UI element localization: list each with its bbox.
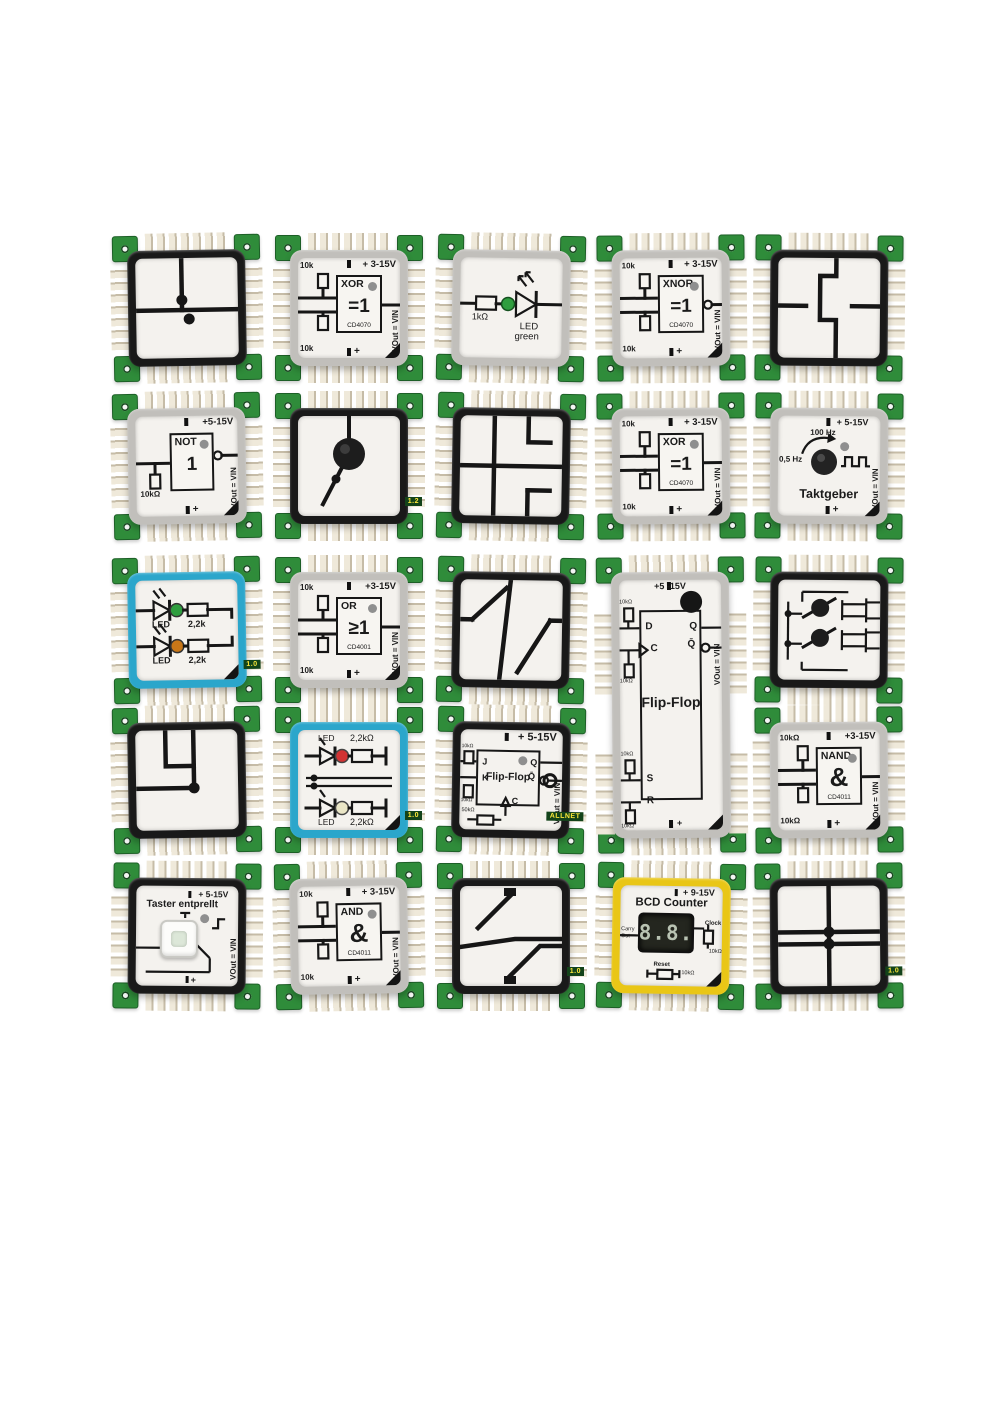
circuit-graphic [778,886,881,987]
resistor-value: 10kΩ [780,734,800,742]
voltage-label: +5 -15V [619,582,721,592]
led-label: LED [152,656,170,665]
resistor-value: 10kΩ [620,679,633,685]
gate-name: AND [340,907,363,918]
corner-wedge [224,664,239,679]
circuit-graphic [778,258,881,359]
brick-face: AND&CD4011+ 3-15V10k10kVOut = VIN+ [297,885,401,987]
brick-frame [290,408,408,524]
brick-bcd-counter: + 9-15VBCD Counter8.8.Clock10kΩCarryOutR… [611,877,731,995]
corner-wedge [706,972,721,987]
resistor-value: 10kΩ [620,752,633,758]
connector-pins [788,992,870,1012]
input-c-label: C [650,644,657,654]
gate-symbol-box: AND&CD4011 [335,902,382,961]
gate-symbol-box: XOR=1CD4070 [336,275,382,333]
gate-symbol: =1 [338,297,380,316]
gate-name: OR [341,601,357,612]
brick-face: XOR=1CD4070+ 3-15V10k10kVOut = VIN+ [620,416,723,517]
brick-and-gate: AND&CD4011+ 3-15V10k10kVOut = VIN+ [289,877,409,995]
status-led-dot [368,282,377,291]
status-led-dot [840,442,849,451]
brick-frame: NOT1+5-15V10kΩVOut = VIN+ [127,407,247,525]
gate-name: XNOR [663,279,693,290]
chip-name: CD4070 [660,480,702,487]
gate-symbol-box: NAND&CD4011 [816,747,863,805]
voltage-label: + 5-15V [198,890,228,899]
connector-pins [568,895,587,977]
resistor-value: 10k [622,503,635,511]
brick-debounced-button[interactable]: Taster entprellt+ 5-15VVOut = VIN+ [127,877,246,994]
connector-pins [728,424,748,506]
brick-frame: XOR=1CD4070+ 3-15V10k10kVOut = VIN+ [611,407,730,524]
status-led-dot [368,910,377,919]
voltage-label: +3-15V [365,582,396,592]
output-q-label: Q [530,758,537,767]
brick-xor-gate-1: XOR=1CD4070+ 3-15V10k10kVOut = VIN+ [290,250,408,366]
module-title: Taktgeber [778,488,880,501]
brick-face [459,415,563,517]
connector-pins [787,364,869,384]
module-title: Flip-Flop [620,695,722,710]
brick-junction-cross [127,249,247,367]
led-label: LED [318,734,335,743]
connector-pins [787,686,869,706]
brick-face [460,886,562,986]
connector-pins [728,751,748,833]
brick-frame: XNOR=1CD4070+ 3-15V10k10kVOut = VIN+ [611,249,730,366]
gate-symbol: =1 [660,455,702,474]
brick-face: OR≥1CD4001+3-15V10k10kVOut = VIN+ [298,580,400,680]
brick-face [778,258,881,359]
led-label: LED [318,818,335,827]
corner-wedge [707,501,722,516]
chip-name: CD4001 [338,645,380,652]
resistor-value: 10kΩ [461,798,473,803]
circuit-graphic [778,580,881,681]
connector-pins [406,267,425,349]
brick-frame: 1kΩLEDgreen [451,249,571,367]
brick-frame: AND&CD4011+ 3-15V10k10kVOut = VIN+ [289,877,409,995]
resistor-value: 10kΩ [621,824,634,830]
resistor-value: 10k [300,345,313,353]
brick-face [778,886,881,987]
plus-label: + [191,976,196,985]
corner-wedge [386,970,401,985]
brick-frame: LED2,2kΩLED2,2kΩ [290,722,408,838]
resistor-value: 10k [622,262,635,270]
brick-face: LED2,2kLED2,2k [135,579,239,681]
resistor-value: 2,2k [188,656,206,665]
connector-pins [145,992,227,1012]
status-led-dot [848,754,857,763]
brick-frame: Taster entprellt+ 5-15VVOut = VIN+ [127,877,246,994]
resistor-value: 10k [299,891,312,899]
plus-label: + [834,819,840,829]
corner-wedge [865,815,880,830]
gate-symbol-box: OR≥1CD4001 [336,597,382,655]
connector-pins [886,267,906,349]
connector-pins [630,364,712,384]
pcb-version-label: 1.0 [243,660,260,669]
led-dot [336,802,349,815]
brick-face: XOR=1CD4070+ 3-15V10k10kVOut = VIN+ [298,258,400,358]
freq-high-label: 100 Hz [810,429,835,437]
brick-frame [451,407,571,525]
brick-frame: + 5-15VJKQQ̄Flip-FlopC50kΩ10kΩ10kΩVOut =… [451,721,571,839]
led-dot [170,604,183,617]
clock-label: Clock [705,921,721,927]
brick-face: + 5-15V100 Hz0,5 HzTaktgeberVOut = VIN+ [778,416,881,517]
led-dot [171,640,184,653]
output-qbar-label: Q̄ [687,640,695,650]
brick-frame [127,721,247,839]
connector-pins [308,364,390,383]
gate-symbol: 1 [172,455,212,475]
input-s-label: S [647,774,654,784]
corner-wedge [708,815,723,830]
brick-face [135,729,239,831]
resistor-value: 10kΩ [619,600,632,606]
input-d-label: D [645,622,652,632]
brick-clock-generator[interactable]: + 5-15V100 Hz0,5 HzTaktgeberVOut = VIN+ [769,407,888,524]
resistor-value: 10kΩ [709,950,722,956]
vout-label: VOut = VIN [229,939,238,981]
brick-face [778,580,881,681]
circuit-graphic [459,257,563,359]
brick-d-flipflop: +5 -15VDCSRQQ̄Flip-Flop10kΩ10kΩ10kΩ10kΩV… [611,571,731,838]
connector-pins [727,611,747,693]
display-digits: 8.8. [639,920,694,945]
status-led-dot [200,914,209,923]
resistor-value: 1kΩ [472,312,488,321]
connector-pins [308,686,390,705]
module-title: Taster entprellt [136,900,228,911]
resistor-value: 10k [300,262,313,270]
resistor-value: 10k [300,667,313,675]
gate-name: NOT [174,437,196,448]
switch-knob[interactable] [333,438,365,470]
brick-led-dual-red-white: LED2,2kΩLED2,2kΩ1.0 [290,722,408,838]
pcb-version-label: ALLNET [547,812,584,822]
carry-out-label: Carry [621,927,635,933]
brick-frame: + 9-15VBCD Counter8.8.Clock10kΩCarryOutR… [611,877,731,995]
circuit-graphic [460,886,562,986]
brick-frame [127,249,247,367]
brick-xor-gate-2: XOR=1CD4070+ 3-15V10k10kVOut = VIN+ [611,407,730,524]
vout-label: VOut = VIN [712,644,721,686]
brick-frame: NAND&CD4011+3-15V10kΩ10kΩVOut = VIN+ [769,721,888,838]
led-dot [336,750,349,763]
plus-label: + [193,505,199,515]
photo-canvas: XOR=1CD4070+ 3-15V10k10kVOut = VIN+1kΩLE… [0,0,1000,1415]
brick-face [135,257,239,359]
trace-junction-dot [824,938,835,949]
corner-wedge [385,815,400,830]
led-dot [501,297,514,310]
resistor-value: 10kΩ [140,490,160,498]
resistor-value: 10k [622,345,635,353]
voltage-label: + 5-15V [518,732,557,744]
module-title: Flip-Flop [476,771,540,783]
corner-wedge [224,500,239,515]
brick-trace-cross-2: 1.0 [769,877,888,994]
status-led-dot [690,440,699,449]
input-r-label: R [647,796,654,806]
resistor-value: 10k [300,584,313,592]
clock-knob[interactable] [811,449,837,475]
connector-pins [631,836,713,856]
corner-wedge [707,343,722,358]
voltage-label: +3-15V [845,732,876,742]
module-title: BCD Counter [620,897,722,910]
connector-pins [244,895,264,977]
input-c-label: C [512,797,519,806]
resistor-value: 10kΩ [681,971,694,977]
voltage-label: + 3-15V [362,887,396,897]
voltage-label: +5-15V [202,417,233,427]
pcb-version-label: 1.0 [885,966,902,975]
led-color-label: green [514,332,538,342]
voltage-label: + 5-15V [837,418,869,427]
plus-label: + [676,505,682,515]
brick-face: 1kΩLEDgreen [459,257,563,359]
brick-face: NOT1+5-15V10kΩVOut = VIN+ [135,415,239,517]
plus-label: + [354,347,360,357]
brick-frame [769,571,888,688]
status-led-dot [200,440,209,449]
circuit-graphic [135,729,239,831]
brick-face [459,579,563,681]
voltage-label: + 3-15V [684,418,718,428]
brick-face: + 9-15VBCD Counter8.8.Clock10kΩCarryOutR… [619,885,723,987]
brick-frame: OR≥1CD4001+3-15V10k10kVOut = VIN+ [290,572,408,688]
carry-out-label: Out [621,934,630,940]
circuit-graphic [459,415,563,517]
resistor-value: 2,2k [188,620,206,629]
voltage-label: + 3-15V [684,260,718,270]
gate-name: XOR [341,279,364,290]
gate-name: NAND [821,751,851,762]
brick-face [298,416,400,516]
circuit-graphic [459,579,563,681]
reset-label: Reset [653,962,669,968]
brick-not-gate: NOT1+5-15V10kΩVOut = VIN+ [127,407,247,525]
corner-wedge [865,501,880,516]
gate-symbol: & [818,764,860,790]
connector-pins [406,425,425,507]
brick-trace-diagonal [451,571,571,689]
seven-segment-display: 8.8. [638,912,695,953]
connector-pins [788,836,870,856]
trace-junction-dot [189,782,200,793]
brick-frame [769,877,888,994]
plus-label: + [354,669,360,679]
brick-trace-steps [769,249,888,366]
brick-frame [769,249,888,366]
pcb-version-label: 1.2 [405,497,422,506]
brick-face: NAND&CD4011+3-15V10kΩ10kΩVOut = VIN+ [778,730,881,831]
led-label: LED [152,620,170,629]
switch-knob[interactable] [811,629,829,647]
connector-pins [630,522,712,542]
output-q-label: Q [689,622,697,632]
connector-pins [787,522,869,542]
plus-label: + [676,347,682,357]
plus-label: + [833,505,839,515]
resistor-value: 2,2kΩ [350,818,374,827]
resistor-value: 10kΩ [780,817,800,825]
connector-pins [406,589,425,671]
plus-label: + [355,975,361,985]
status-led-dot [518,756,527,765]
brick-trace-diagonal-2: 1.0 [452,878,570,994]
status-led-dot [690,282,699,291]
connector-pins [406,739,425,821]
brick-frame [452,878,570,994]
brick-trace-corners [127,721,247,839]
brick-toggle-switch[interactable]: 1.2 [290,408,408,524]
brick-face: Taster entprellt+ 5-15VVOut = VIN+ [136,886,239,987]
gate-symbol-box: XNOR=1CD4070 [658,275,705,333]
chip-name: CD4011 [818,794,860,801]
corner-wedge [385,665,400,680]
trace-junction-dot [176,294,187,305]
gate-symbol: =1 [660,297,702,316]
input-j-label: J [482,757,487,766]
brick-frame: LED2,2kLED2,2k [127,571,247,689]
switch-knob[interactable] [811,599,829,617]
chip-name: CD4011 [338,950,380,957]
brick-led-green: 1kΩLEDgreen [451,249,571,367]
connector-pins [728,266,748,348]
circuit-graphic [298,416,400,516]
gate-name: XOR [663,437,686,448]
brick-nand-gate: NAND&CD4011+3-15V10kΩ10kΩVOut = VIN+ [769,721,888,838]
plus-label: + [677,819,682,828]
voltage-label: + 3-15V [362,260,396,270]
circuit-graphic [135,257,239,359]
connector-pins [470,992,552,1011]
brick-frame: + 5-15V100 Hz0,5 HzTaktgeberVOut = VIN+ [769,407,888,524]
resistor-value: 10k [301,974,314,982]
connector-pins [308,836,390,855]
brick-face: LED2,2kΩLED2,2kΩ [298,730,400,830]
trace-junction-dot [184,313,195,324]
freq-low-label: 0,5 Hz [779,456,802,464]
brick-led-dual-green-orange: LED2,2kLED2,2k1.0 [127,571,247,689]
chip-name: CD4070 [338,323,380,330]
pcb-version-label: 1.0 [567,967,584,976]
push-button[interactable] [160,920,198,958]
status-led-dot [368,604,377,613]
trace-junction-dot [823,926,834,937]
brick-frame: +5 -15VDCSRQQ̄Flip-Flop10kΩ10kΩ10kΩ10kΩV… [611,571,731,838]
brick-frame [451,571,571,689]
resistor-value: 50kΩ [461,808,474,814]
corner-wedge [385,343,400,358]
connector-pins [886,894,906,976]
brick-or-gate: OR≥1CD4001+3-15V10k10kVOut = VIN+ [290,572,408,688]
gate-symbol: ≥1 [338,619,380,638]
gate-symbol-box: NOT1 [169,433,214,492]
resistor-value: 10k [622,420,635,428]
connector-pins [886,589,906,671]
connector-pins [886,425,906,507]
resistor-value: 2,2kΩ [350,734,374,743]
chip-name: CD4070 [660,322,702,329]
pcb-version-label: 1.0 [405,811,422,820]
brick-xnor-gate: XNOR=1CD4070+ 3-15V10k10kVOut = VIN+ [611,249,730,366]
brick-face: XNOR=1CD4070+ 3-15V10k10kVOut = VIN+ [620,258,723,359]
brick-frame: XOR=1CD4070+ 3-15V10k10kVOut = VIN+ [290,250,408,366]
connector-pins [308,522,390,541]
brick-jk-flipflop: + 5-15VJKQQ̄Flip-FlopC50kΩ10kΩ10kΩVOut =… [451,721,571,839]
gate-symbol-box: XOR=1CD4070 [658,433,705,491]
brick-face: +5 -15VDCSRQQ̄Flip-Flop10kΩ10kΩ10kΩ10kΩV… [619,580,723,831]
resistor-value: 10kΩ [462,744,474,749]
brick-dual-switch[interactable] [769,571,888,688]
gate-symbol: & [338,919,380,946]
brick-trace-grid [451,407,571,525]
connector-pins [886,738,906,820]
